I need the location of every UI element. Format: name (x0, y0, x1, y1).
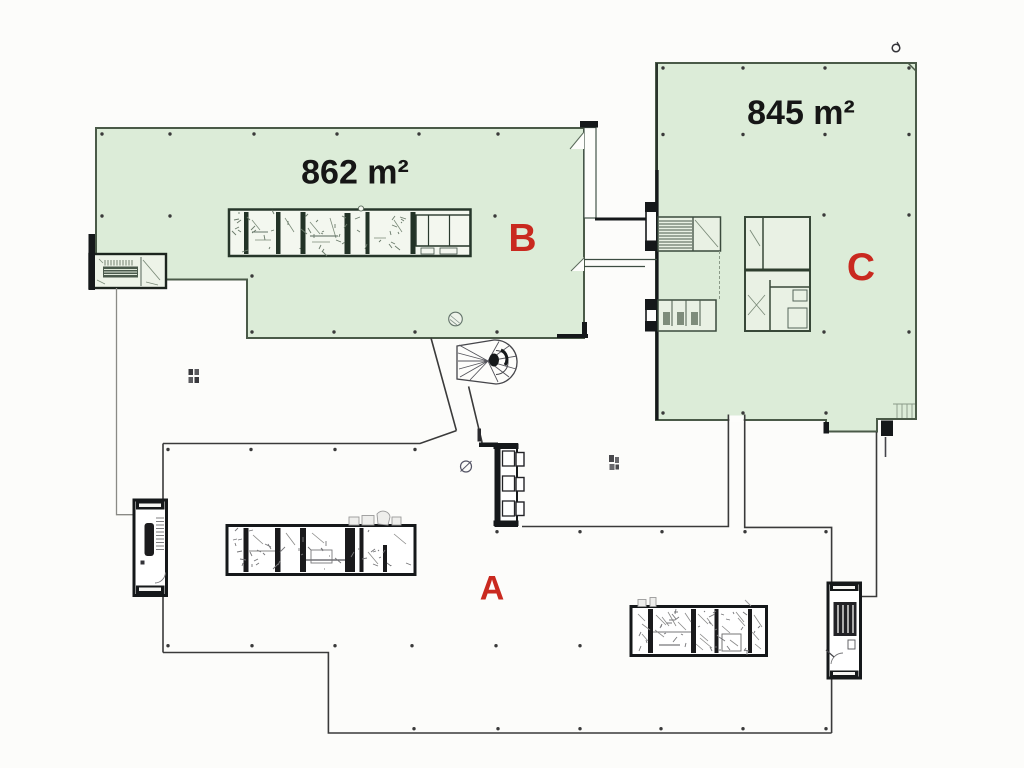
svg-text:B: B (508, 217, 536, 260)
svg-text:845 m²: 845 m² (747, 94, 855, 132)
svg-text:862 m²: 862 m² (301, 154, 409, 192)
svg-text:A: A (480, 570, 505, 608)
svg-text:C: C (847, 246, 875, 289)
